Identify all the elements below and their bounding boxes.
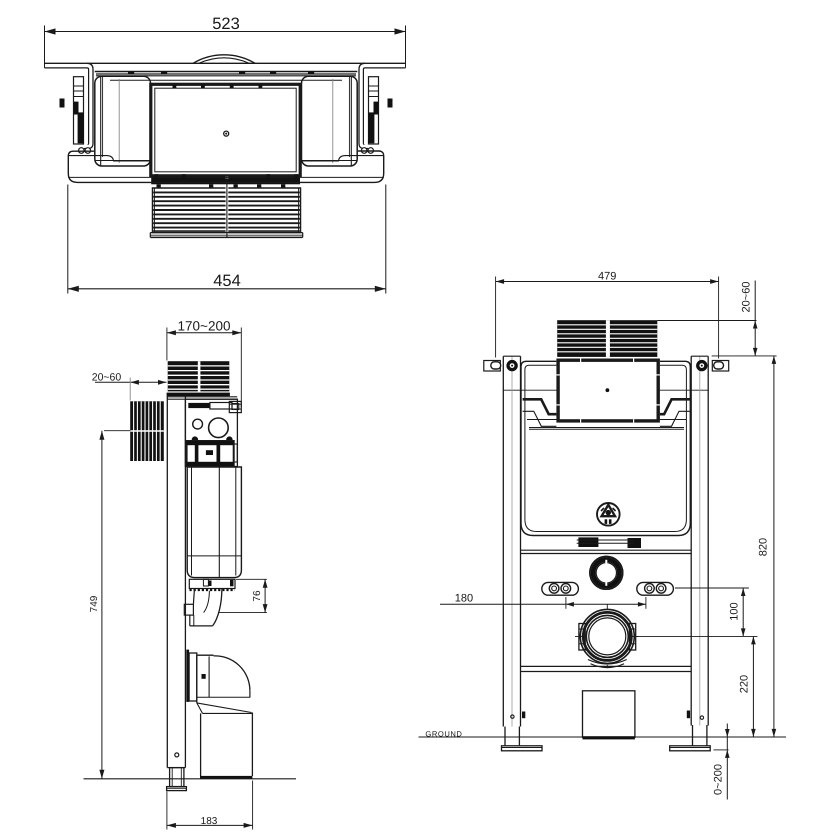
svg-text:454: 454 — [213, 272, 241, 290]
svg-text:100: 100 — [728, 602, 740, 620]
svg-text:820: 820 — [758, 538, 770, 556]
svg-text:523: 523 — [212, 15, 240, 33]
svg-text:76: 76 — [252, 590, 263, 602]
svg-text:183: 183 — [201, 816, 218, 827]
svg-text:20~60: 20~60 — [92, 371, 122, 383]
svg-text:220: 220 — [739, 675, 751, 693]
svg-text:0~200: 0~200 — [712, 764, 724, 795]
svg-text:479: 479 — [598, 271, 616, 283]
svg-text:170~200: 170~200 — [178, 319, 231, 334]
svg-text:749: 749 — [89, 595, 100, 612]
svg-text:180: 180 — [455, 593, 473, 605]
svg-text:20~60: 20~60 — [740, 282, 752, 313]
